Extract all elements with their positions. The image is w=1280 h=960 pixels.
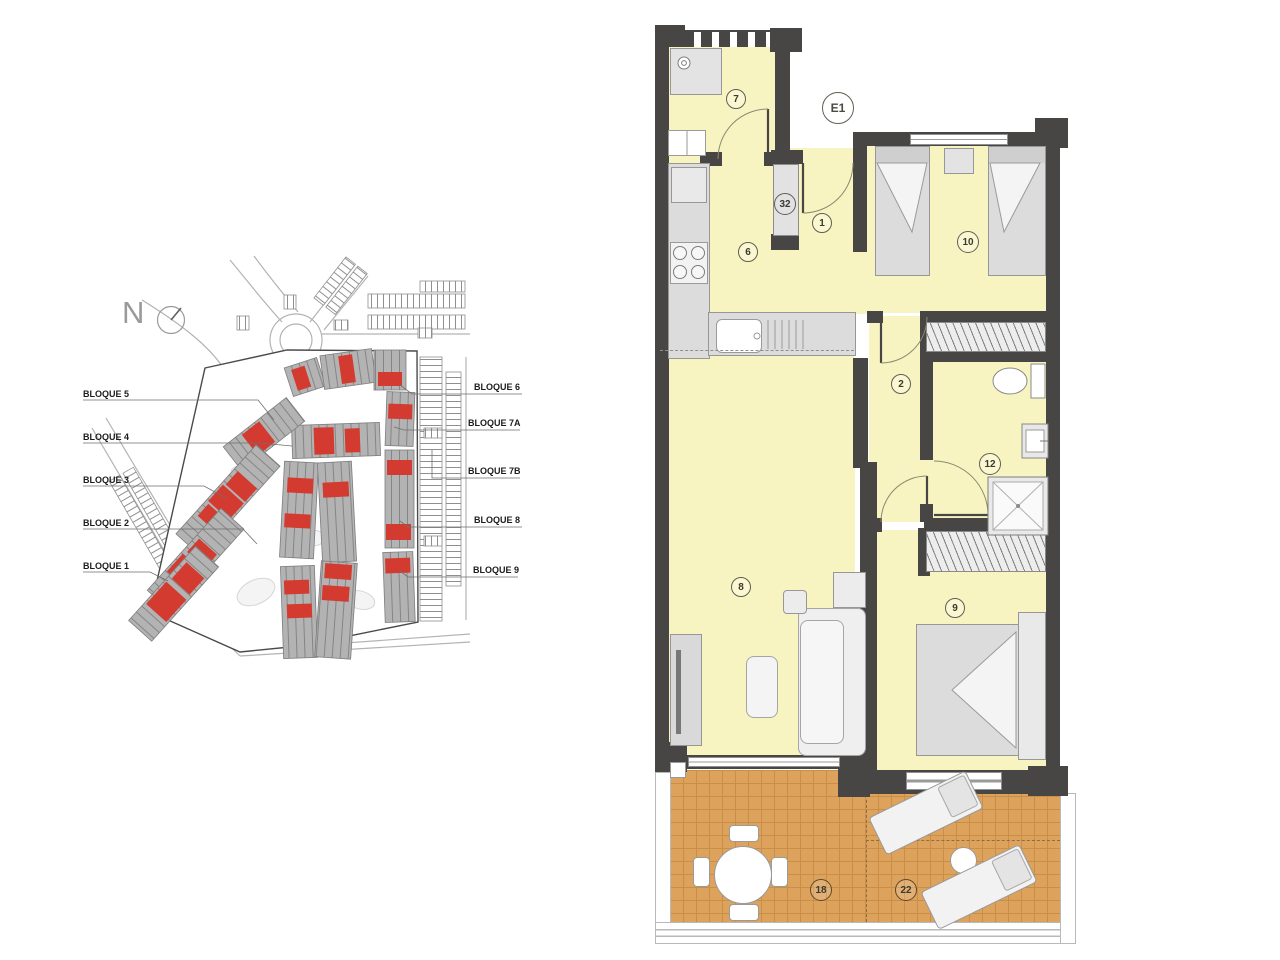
block-label-bloque-4: BLOQUE 4: [83, 432, 129, 442]
room-number-terrace18: 18: [810, 879, 832, 901]
room-number-bedroom9: 9: [945, 598, 965, 618]
block-label-bloque-7b: BLOQUE 7B: [468, 466, 521, 476]
north-label: N: [122, 295, 144, 331]
block-label-bloque-1: BLOQUE 1: [83, 561, 129, 571]
room-number-entry: 1: [812, 213, 832, 233]
room-number-living: 8: [731, 577, 751, 597]
block-label-bloque-8: BLOQUE 8: [474, 515, 520, 525]
room-number-kitchen: 6: [738, 242, 758, 262]
labels-layer: N BLOQUE 5 BLOQUE 4 BLOQUE 3 BLOQUE 2 BL…: [0, 0, 1280, 960]
room-number-terrace22: 22: [895, 879, 917, 901]
block-label-bloque-6: BLOQUE 6: [474, 382, 520, 392]
floorplan-page: N BLOQUE 5 BLOQUE 4 BLOQUE 3 BLOQUE 2 BL…: [0, 0, 1280, 960]
room-number-hall2: 2: [891, 374, 911, 394]
room-number-bedroom10: 10: [957, 231, 979, 253]
room-number-laundry: 7: [726, 89, 746, 109]
block-label-bloque-2: BLOQUE 2: [83, 518, 129, 528]
room-number-duct: 32: [774, 193, 796, 215]
block-label-bloque-3: BLOQUE 3: [83, 475, 129, 485]
block-label-bloque-7a: BLOQUE 7A: [468, 418, 521, 428]
block-label-bloque-9: BLOQUE 9: [473, 565, 519, 575]
room-number-bathroom: 12: [979, 453, 1001, 475]
block-label-bloque-5: BLOQUE 5: [83, 389, 129, 399]
unit-label-e1: E1: [822, 92, 854, 124]
